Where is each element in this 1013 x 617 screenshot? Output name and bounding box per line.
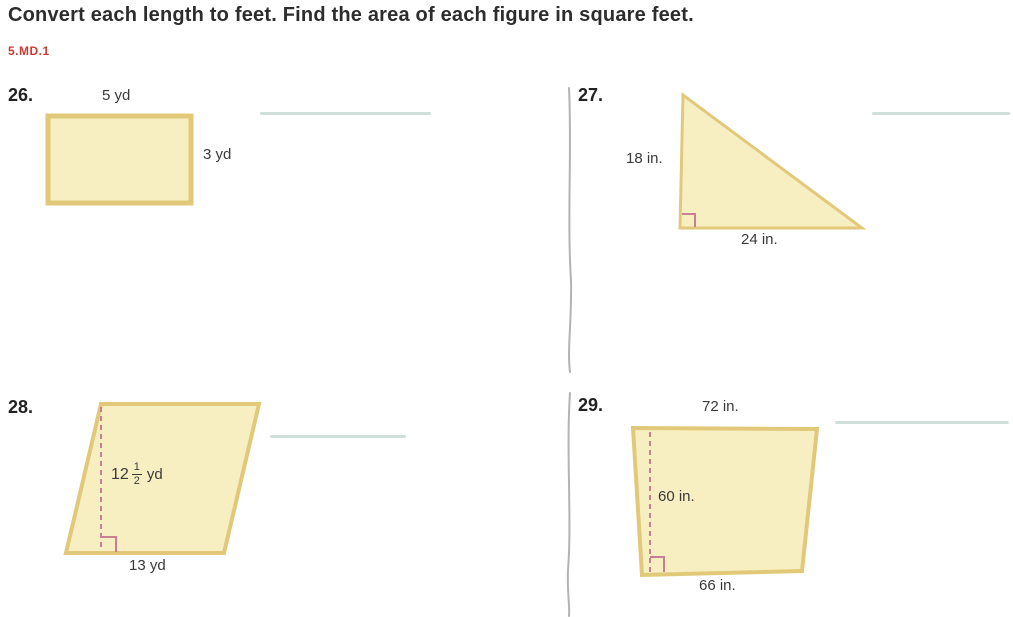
- problem-28-answer-line: [270, 435, 406, 438]
- problem-27-bottom-dimension: 24 in.: [741, 231, 778, 248]
- problem-28-bottom-dimension: 13 yd: [129, 557, 166, 574]
- problem-29-height-dimension: 60 in.: [658, 488, 695, 505]
- fraction: 1 2: [132, 462, 142, 487]
- rectangle-figure: [48, 116, 191, 203]
- problem-28-height-dimension: 12 1 2 yd: [111, 462, 163, 487]
- problem-29-number: 29.: [578, 395, 603, 416]
- problem-26-number: 26.: [8, 85, 33, 106]
- column-divider-top: [569, 88, 571, 372]
- problem-27-answer-line: [872, 112, 1010, 115]
- problem-29-bottom-dimension: 66 in.: [699, 577, 736, 594]
- dimension-unit: yd: [147, 466, 163, 483]
- problem-29-answer-line: [835, 421, 1009, 424]
- column-divider-bottom: [568, 393, 570, 616]
- fraction-numerator: 1: [132, 462, 142, 475]
- problem-26-right-dimension: 3 yd: [203, 146, 231, 163]
- figures-canvas: [0, 0, 1013, 617]
- fraction-denominator: 2: [134, 475, 140, 487]
- right-triangle-figure: [680, 95, 862, 228]
- problem-29-top-dimension: 72 in.: [702, 398, 739, 415]
- problem-27-left-dimension: 18 in.: [626, 150, 663, 167]
- problem-28-number: 28.: [8, 397, 33, 418]
- mixed-number-whole: 12: [111, 466, 129, 484]
- problem-26-answer-line: [260, 112, 431, 115]
- problem-26-top-dimension: 5 yd: [102, 87, 130, 104]
- problem-27-number: 27.: [578, 85, 603, 106]
